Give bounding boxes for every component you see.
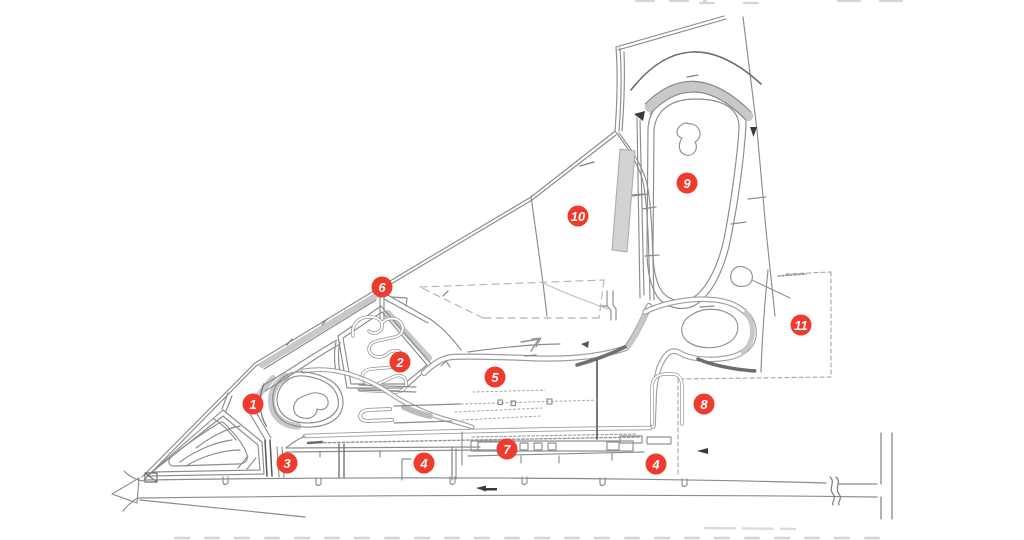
svg-text:8: 8 [700,397,708,412]
svg-text:7: 7 [503,442,511,457]
svg-text:1: 1 [249,397,256,412]
svg-text:10: 10 [571,209,586,224]
svg-text:11: 11 [794,318,808,333]
svg-text:6: 6 [378,280,386,295]
svg-text:5: 5 [491,370,499,385]
svg-text:9: 9 [683,176,691,191]
svg-text:2: 2 [395,355,404,370]
svg-text:4: 4 [651,457,660,472]
svg-text:4: 4 [419,456,428,471]
svg-text:3: 3 [283,456,291,471]
